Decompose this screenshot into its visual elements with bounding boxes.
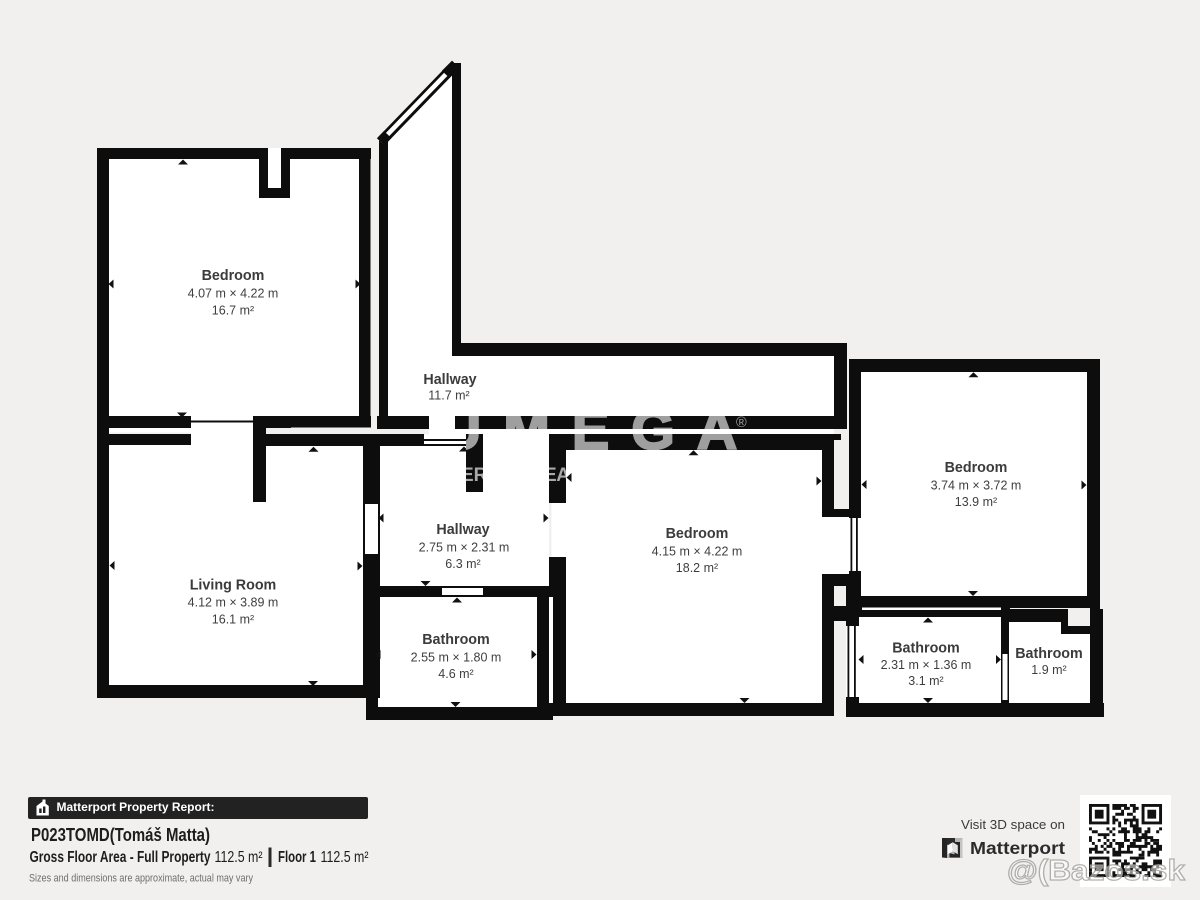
svg-text:Bathroom: Bathroom [1015,646,1083,662]
svg-text:Bathroom: Bathroom [422,632,490,648]
svg-text:11.7 m²: 11.7 m² [428,389,469,403]
svg-text:4.07 m × 4.22 m: 4.07 m × 4.22 m [188,287,279,301]
svg-text:2.31 m × 1.36 m: 2.31 m × 1.36 m [881,658,972,672]
svg-text:®: ® [736,415,747,431]
svg-text:Hallway: Hallway [423,372,476,388]
svg-text:4.12 m × 3.89 m: 4.12 m × 3.89 m [188,596,279,610]
svg-text:4.6 m²: 4.6 m² [438,667,473,681]
svg-text:Bedroom: Bedroom [666,526,729,542]
svg-text:P023TOMD(Tomáš Matta): P023TOMD(Tomáš Matta) [31,825,210,845]
svg-text:18.2 m²: 18.2 m² [676,561,718,575]
svg-text:112.5 m²: 112.5 m² [321,849,369,866]
svg-text:1.9 m²: 1.9 m² [1031,663,1066,677]
svg-text:16.7 m²: 16.7 m² [212,304,254,318]
svg-text:3.74 m × 3.72 m: 3.74 m × 3.72 m [931,479,1022,493]
svg-text:Living Room: Living Room [190,578,277,594]
svg-text:Sizes and dimensions are appro: Sizes and dimensions are approximate, ac… [29,873,253,885]
svg-text:3.1 m²: 3.1 m² [908,674,943,688]
svg-text:Bedroom: Bedroom [945,460,1008,476]
svg-text:Hallway: Hallway [436,522,489,538]
svg-text:Visit 3D space on: Visit 3D space on [961,817,1065,832]
svg-text:Bathroom: Bathroom [892,641,960,657]
svg-text:2.75 m × 2.31 m: 2.75 m × 2.31 m [419,541,510,555]
svg-text:Matterport Property Report:: Matterport Property Report: [57,800,215,814]
svg-text:4.15 m × 4.22 m: 4.15 m × 4.22 m [652,545,743,559]
svg-text:@(Bazos.sk: @(Bazos.sk [1007,855,1185,887]
svg-text:112.5 m²: 112.5 m² [215,849,263,866]
svg-text:Gross Floor Area - Full Proper: Gross Floor Area - Full Property [30,849,211,866]
svg-text:13.9 m²: 13.9 m² [955,495,997,509]
svg-text:Bedroom: Bedroom [202,268,265,284]
svg-text:Floor 1: Floor 1 [278,849,316,866]
svg-text:16.1 m²: 16.1 m² [212,613,254,627]
svg-text:2.55 m × 1.80 m: 2.55 m × 1.80 m [411,651,502,665]
svg-text:6.3 m²: 6.3 m² [445,557,480,571]
